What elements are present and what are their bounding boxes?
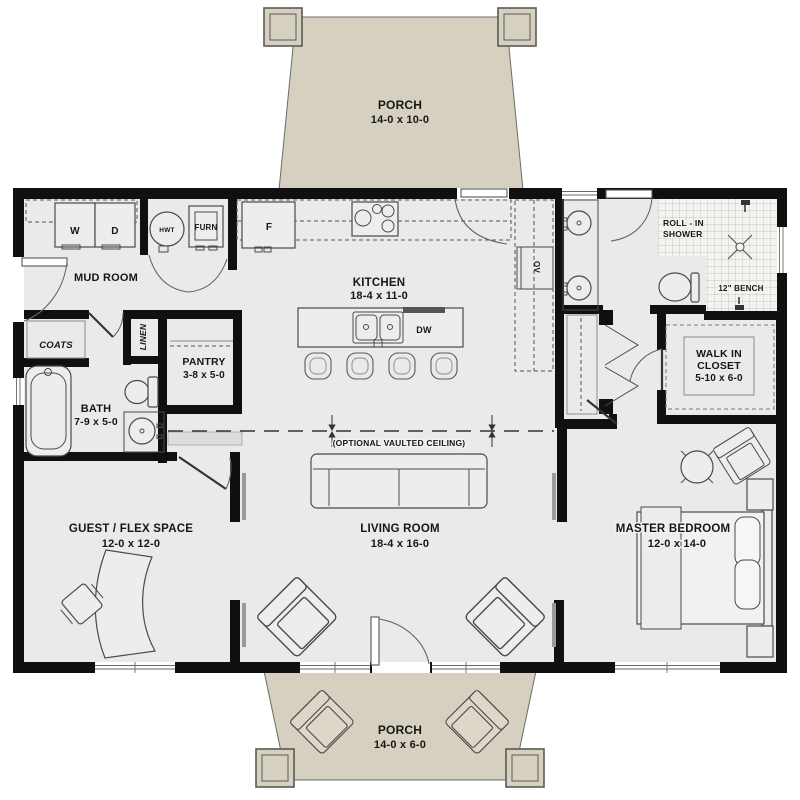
bath-dims: 7-9 x 5-0 [74, 416, 118, 428]
bench-label: 12" BENCH [718, 284, 763, 293]
guest-flex-label: GUEST / FLEX SPACE [69, 523, 193, 535]
coats-label: COATS [39, 340, 73, 351]
window [615, 662, 720, 673]
walk-in-label-1: WALK IN [696, 348, 742, 360]
nightstand [747, 479, 773, 510]
master-bedroom-label: MASTER BEDROOM [616, 523, 731, 535]
master-toilet [659, 273, 699, 302]
water-heater-label: HWT [159, 227, 174, 234]
floor-plan-drawing: PORCH 14-0 x 10-0 W D HWT FURN MUD ROOM … [0, 0, 800, 800]
porch-top-label: PORCH [378, 98, 422, 112]
window [300, 662, 370, 673]
living-room-dims: 18-4 x 16-0 [371, 538, 429, 550]
wall-oven-label: OV [532, 261, 541, 273]
living-room-label: LIVING ROOM [360, 523, 440, 535]
linen-label: LINEN [138, 323, 148, 350]
dryer-label: D [111, 226, 118, 237]
kitchen-dims: 18-4 x 11-0 [350, 290, 408, 302]
cooktop [352, 202, 398, 236]
furnace-label: FURN [194, 223, 217, 232]
shower-label-2: SHOWER [663, 229, 702, 239]
porch-bottom-dims: 14-0 x 6-0 [374, 739, 426, 751]
floor-plan-page: PORCH 14-0 x 10-0 W D HWT FURN MUD ROOM … [0, 0, 800, 800]
shower-label-1: ROLL - IN [663, 218, 704, 228]
porch-top-dims: 14-0 x 10-0 [371, 114, 429, 126]
window [562, 188, 597, 199]
living-room-sofa [311, 454, 487, 508]
pantry-label: PANTRY [182, 356, 225, 368]
mud-room-label: MUD ROOM [74, 272, 138, 284]
porch-post [256, 749, 294, 787]
bathtub [26, 366, 71, 456]
pantry-dims: 3-8 x 5-0 [183, 370, 225, 381]
dishwasher-label: DW [416, 325, 432, 335]
guest-flex-dims: 12-0 x 12-0 [102, 538, 160, 550]
walk-in-dims: 5-10 x 6-0 [695, 373, 743, 384]
bath-label: BATH [81, 403, 112, 415]
porch-post [498, 8, 536, 46]
vaulted-ceiling-note: (OPTIONAL VAULTED CEILING) [333, 438, 466, 448]
walk-in-label-2: CLOSET [697, 360, 741, 372]
nightstand [747, 626, 773, 657]
master-bedroom-dims: 12-0 x 14-0 [648, 538, 706, 550]
kitchen-island [298, 307, 463, 347]
porch-bottom-label: PORCH [378, 723, 422, 737]
kitchen-label: KITCHEN [353, 277, 406, 289]
window [13, 378, 24, 405]
washer-label: W [70, 226, 80, 237]
window [95, 662, 175, 673]
window [776, 227, 787, 273]
porch-post [264, 8, 302, 46]
fridge-label: F [266, 222, 272, 233]
window [432, 662, 500, 673]
porch-post [506, 749, 544, 787]
master-table [681, 451, 713, 483]
